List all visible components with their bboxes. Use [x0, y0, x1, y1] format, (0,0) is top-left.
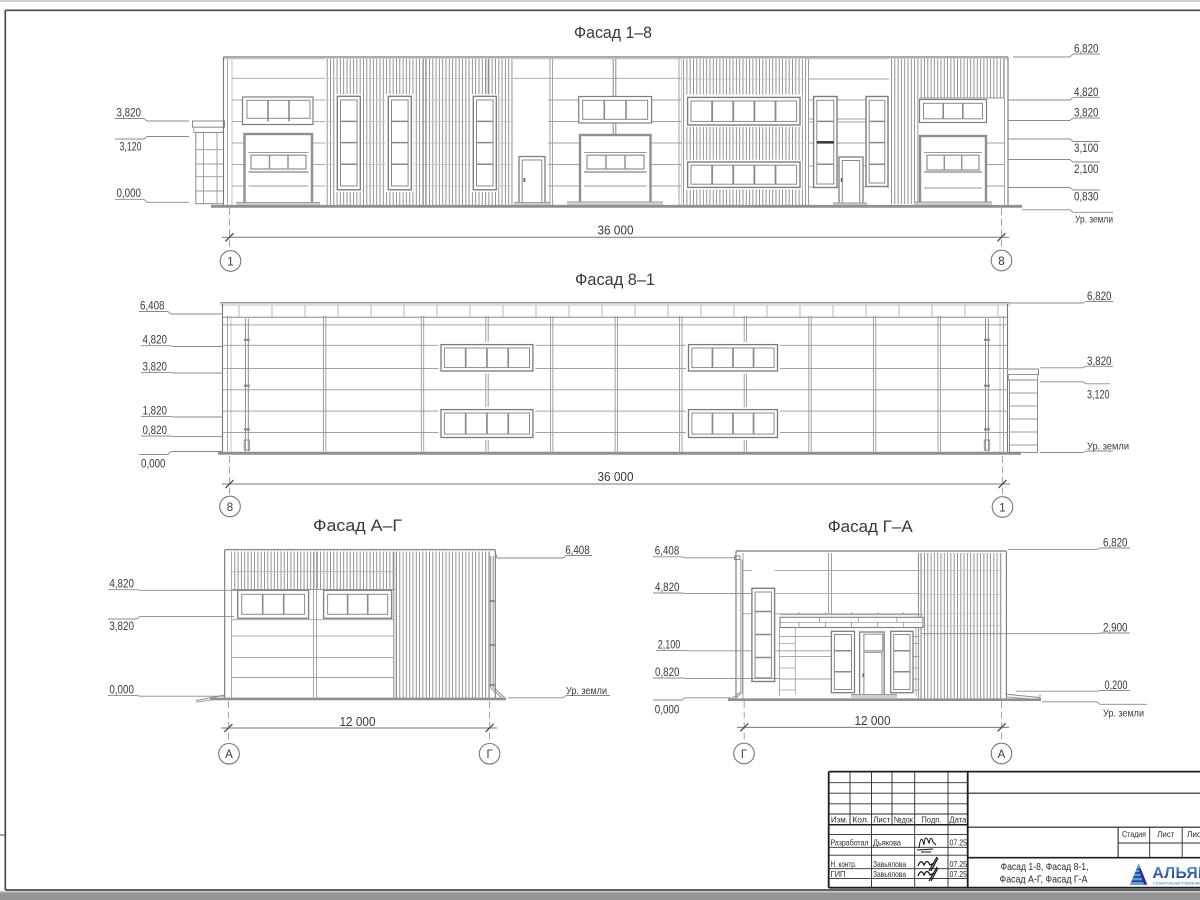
svg-text:№док: №док [894, 815, 913, 825]
svg-text:3,100: 3,100 [1074, 141, 1099, 155]
svg-text:3,820: 3,820 [117, 106, 142, 120]
svg-text:Ур. земли: Ур. земли [1087, 441, 1129, 453]
svg-text:6,408: 6,408 [565, 543, 590, 557]
svg-text:6,820: 6,820 [1074, 42, 1099, 56]
svg-text:Завьялова: Завьялова [873, 859, 906, 869]
svg-text:0,000: 0,000 [109, 683, 134, 697]
svg-text:07.25: 07.25 [950, 869, 968, 879]
svg-text:3,820: 3,820 [1074, 106, 1099, 120]
svg-text:0,820: 0,820 [143, 423, 168, 437]
svg-text:Фасад 8–1: Фасад 8–1 [575, 270, 655, 289]
svg-text:Фасад 1-8, Фасад 8-1,: Фасад 1-8, Фасад 8-1, [1001, 862, 1089, 873]
svg-text:4,820: 4,820 [1074, 85, 1099, 99]
svg-text:8: 8 [998, 256, 1004, 268]
svg-text:07.25: 07.25 [950, 837, 968, 847]
svg-text:Лист: Лист [1157, 829, 1174, 839]
svg-text:Г: Г [741, 749, 748, 761]
svg-text:Дьякова: Дьякова [873, 837, 901, 847]
svg-text:1,820: 1,820 [143, 403, 168, 417]
svg-text:Подп.: Подп. [921, 815, 941, 825]
svg-text:07.25: 07.25 [950, 859, 968, 869]
svg-text:Ур. земли: Ур. земли [566, 685, 607, 697]
svg-text:Н. контр.: Н. контр. [831, 859, 857, 869]
svg-text:4,820: 4,820 [143, 333, 168, 347]
svg-text:3,820: 3,820 [1087, 354, 1112, 368]
svg-text:Фасад А-Г, Фасад Г-А: Фасад А-Г, Фасад Г-А [1000, 874, 1088, 885]
svg-text:3,120: 3,120 [120, 140, 142, 154]
svg-text:6,820: 6,820 [1103, 535, 1128, 549]
svg-text:2,900: 2,900 [1103, 621, 1128, 635]
svg-text:Г: Г [486, 749, 493, 761]
svg-text:2,100: 2,100 [1074, 162, 1099, 176]
svg-text:АЛЬЯНС: АЛЬЯНС [1153, 865, 1200, 882]
svg-text:3,820: 3,820 [109, 619, 134, 633]
svg-text:Разработал: Разработал [831, 837, 869, 847]
svg-text:2,100: 2,100 [658, 637, 681, 651]
svg-text:0,000: 0,000 [655, 702, 680, 716]
svg-text:0,000: 0,000 [141, 457, 166, 471]
svg-text:Фасад 1–8: Фасад 1–8 [574, 23, 652, 42]
svg-text:36 000: 36 000 [598, 469, 634, 484]
svg-text:8: 8 [227, 502, 233, 514]
svg-text:0,200: 0,200 [1105, 678, 1128, 692]
svg-text:ГИП: ГИП [831, 869, 846, 879]
svg-text:6,408: 6,408 [655, 544, 680, 558]
svg-text:6,820: 6,820 [1087, 289, 1112, 303]
svg-text:Ур. земли: Ур. земли [1103, 707, 1144, 719]
svg-text:А: А [998, 749, 1006, 761]
svg-text:0,830: 0,830 [1074, 190, 1099, 204]
svg-text:Фасад А–Г: Фасад А–Г [313, 516, 402, 535]
svg-text:Лис: Лис [1187, 829, 1200, 839]
svg-text:Кол.: Кол. [852, 815, 869, 825]
svg-text:Дата: Дата [949, 815, 966, 825]
svg-text:4,820: 4,820 [655, 580, 680, 594]
svg-text:Лист: Лист [873, 815, 890, 825]
svg-text:Стадия: Стадия [1122, 829, 1146, 839]
svg-text:0,000: 0,000 [117, 186, 142, 200]
svg-text:Завьялова: Завьялова [873, 869, 906, 879]
svg-text:12 000: 12 000 [855, 713, 891, 728]
svg-text:строительная компания: строительная компания [1153, 880, 1200, 885]
svg-text:Фасад Г–А: Фасад Г–А [828, 517, 914, 536]
svg-text:1: 1 [227, 256, 233, 268]
svg-text:6,408: 6,408 [140, 299, 165, 313]
svg-text:36 000: 36 000 [598, 223, 634, 238]
svg-text:3,120: 3,120 [1087, 388, 1110, 402]
svg-text:3,820: 3,820 [143, 359, 168, 373]
svg-text:0,820: 0,820 [655, 665, 680, 679]
svg-text:4,820: 4,820 [109, 577, 134, 591]
svg-text:12 000: 12 000 [340, 714, 376, 729]
svg-text:А: А [225, 749, 233, 761]
svg-text:Изм.: Изм. [831, 815, 848, 825]
svg-text:Ур. земли: Ур. земли [1075, 214, 1113, 226]
svg-text:1: 1 [999, 502, 1005, 514]
